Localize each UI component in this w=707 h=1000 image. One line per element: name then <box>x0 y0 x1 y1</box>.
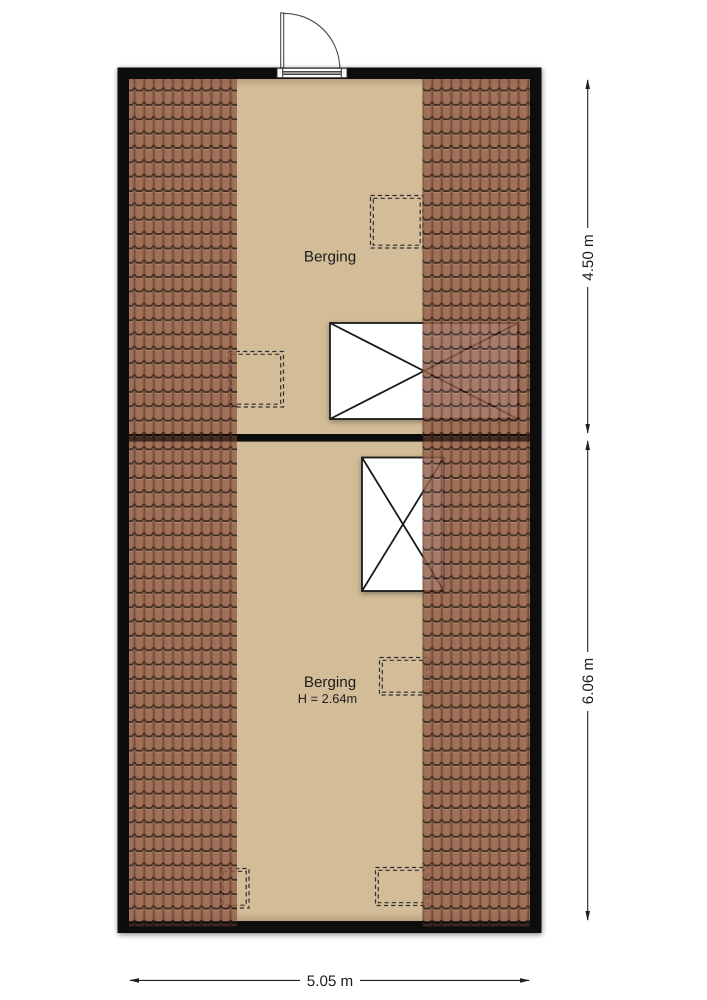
svg-text:Berging: Berging <box>304 249 356 266</box>
svg-text:6.06 m: 6.06 m <box>580 658 597 704</box>
svg-text:H = 2.64m: H = 2.64m <box>298 691 357 706</box>
svg-text:5.05 m: 5.05 m <box>307 973 353 990</box>
svg-text:Berging: Berging <box>304 674 356 691</box>
svg-text:4.50 m: 4.50 m <box>580 234 597 280</box>
